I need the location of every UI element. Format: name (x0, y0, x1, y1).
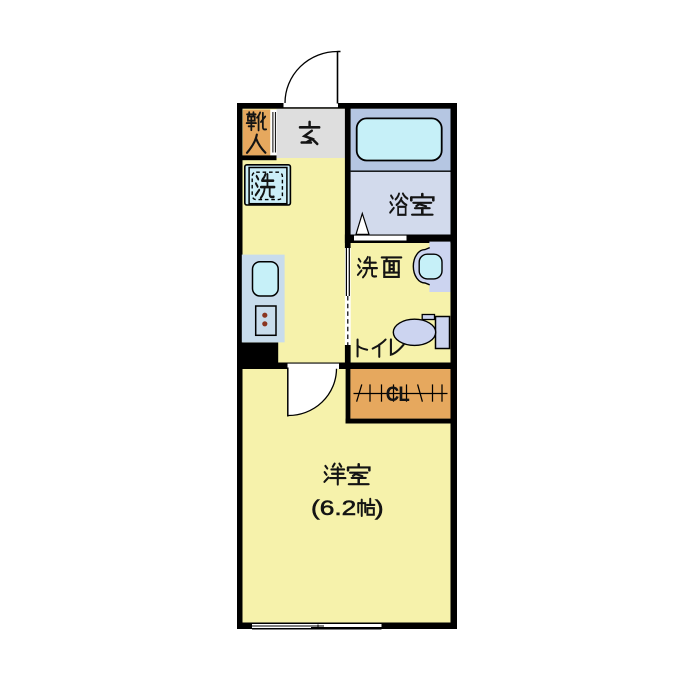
svg-text:): ) (375, 496, 384, 520)
svg-text:CL: CL (386, 383, 410, 406)
svg-text:(6.2: (6.2 (311, 496, 356, 520)
